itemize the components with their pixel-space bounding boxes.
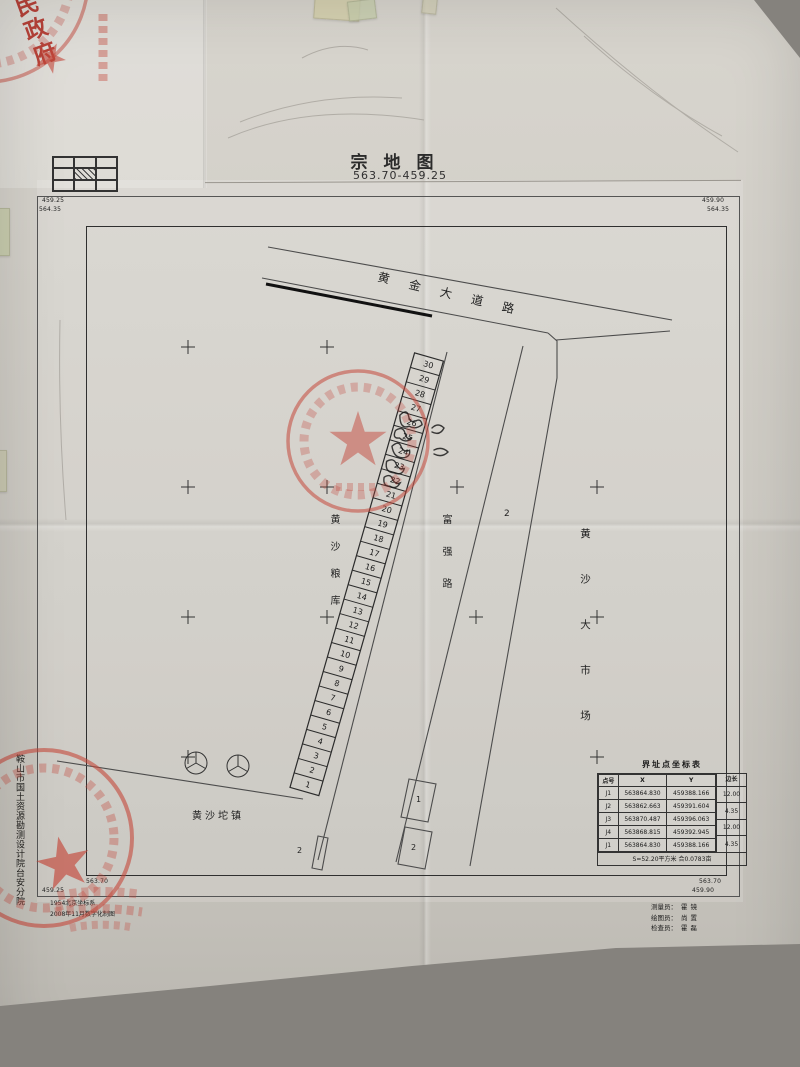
note-datum: 1954北京坐标系 [50, 898, 115, 909]
coord-cell: 459391.604 [667, 800, 716, 813]
coord-cell: 459388.166 [667, 839, 716, 852]
coord-cell: 459388.166 [667, 787, 716, 800]
side-length-cell: 12.00 [717, 820, 746, 837]
tape-piece-3 [421, 0, 438, 15]
surveyor-row: 测量员：霍镜 [651, 902, 700, 913]
coord-cell: 563862.663 [618, 800, 667, 813]
table-row: J2563862.663459391.604 [599, 800, 716, 813]
credits-block: 测量员：霍镜 绘图员：尚置 检查员：霍磊 [651, 902, 700, 934]
coord-cell: J1 [599, 839, 619, 852]
corner-coordinate-tl-x: 564.35 [39, 206, 61, 213]
coordinate-table-grid: 点号 X Y J1563864.830459388.166J2563862.66… [597, 773, 747, 853]
surveyor-label: 测量员： [651, 902, 677, 913]
institution-name: 鞍山市国土资源勘测设计院台安分院 [13, 754, 26, 914]
checker-name: 霍磊 [681, 923, 700, 934]
side-length-cell: 4.35 [717, 803, 746, 820]
parcel-number-small-top: 1 [416, 795, 421, 804]
paper-background: 民政府 宗地图 563.70-459.25 459.25 564.35 459.… [0, 0, 800, 1067]
side-length-cell: 12.00 [717, 787, 746, 804]
col-header-y: Y [667, 775, 716, 787]
coord-cell: 563864.830 [618, 839, 667, 852]
col-header-side: 边长 [717, 774, 746, 787]
corner-coordinate-tl-y: 459.25 [42, 197, 64, 204]
area-label-granary: 黄沙粮库 [326, 514, 341, 630]
parcel-number-left: 2 [297, 846, 302, 855]
coordinate-columns: 点号 X Y J1563864.830459388.166J2563862.66… [598, 774, 716, 852]
road-label-fuqiang: 富强路 [438, 514, 453, 618]
corner-coordinate-tr-x: 564.35 [707, 206, 729, 213]
corner-coordinate-tr-y: 459.90 [702, 197, 724, 204]
table-row: J1563864.830459388.166 [599, 839, 716, 852]
photographed-document: 民政府 宗地图 563.70-459.25 459.25 564.35 459.… [0, 0, 800, 1067]
table-row: J1563864.830459388.166 [599, 787, 716, 800]
parcel-number-market: 2 [504, 509, 510, 519]
coordinate-table-title: 界址点坐标表 [597, 759, 747, 770]
coord-cell: J4 [599, 826, 619, 839]
corner-coordinate-br-y: 459.90 [692, 887, 714, 894]
town-label: 黄沙坨镇 [192, 807, 244, 822]
col-header-x: X [618, 775, 667, 787]
coord-cell: J3 [599, 813, 619, 826]
drafter-label: 绘图员： [651, 913, 677, 924]
table-row: J3563870.487459396.063 [599, 813, 716, 826]
coord-cell: 563870.487 [618, 813, 667, 826]
map-notes: 1954北京坐标系 2008年11月数字化制图 [50, 898, 115, 920]
note-production: 2008年11月数字化制图 [50, 909, 115, 920]
drafter-name: 尚置 [681, 913, 700, 924]
tape-piece-2 [347, 0, 377, 22]
area-footer: S=52.20平方米 合0.0783亩 [597, 853, 747, 866]
surveyor-name: 霍镜 [681, 902, 700, 913]
coord-cell: 563868.815 [618, 826, 667, 839]
coord-cell: J2 [599, 800, 619, 813]
corner-coordinate-br-x: 563.70 [699, 878, 721, 885]
col-header-point: 点号 [599, 775, 619, 787]
table-row: J4563868.815459392.945 [599, 826, 716, 839]
drafter-row: 绘图员：尚置 [651, 913, 700, 924]
tape-piece-left-1 [0, 208, 10, 256]
coordinate-table: 界址点坐标表 点号 X Y J1563864.830459388.166J256… [597, 759, 747, 866]
coord-cell: 563864.830 [618, 787, 667, 800]
area-label-market: 黄沙大市场 [578, 528, 593, 764]
side-length-column: 边长 12.004.3512.004.35 [716, 774, 746, 852]
side-length-cell: 4.35 [717, 836, 746, 852]
checker-label: 检查员： [651, 923, 677, 934]
parcel-number-small-bottom: 2 [411, 843, 416, 852]
coord-cell: J1 [599, 787, 619, 800]
tape-piece-left-2 [0, 450, 7, 492]
coord-cell: 459392.945 [667, 826, 716, 839]
checker-row: 检查员：霍磊 [651, 923, 700, 934]
sheet-number: 563.70-459.25 [0, 169, 800, 182]
corner-coordinate-bl-x: 563.70 [86, 878, 108, 885]
corner-coordinate-bl-y: 459.25 [42, 887, 64, 894]
coord-cell: 459396.063 [667, 813, 716, 826]
